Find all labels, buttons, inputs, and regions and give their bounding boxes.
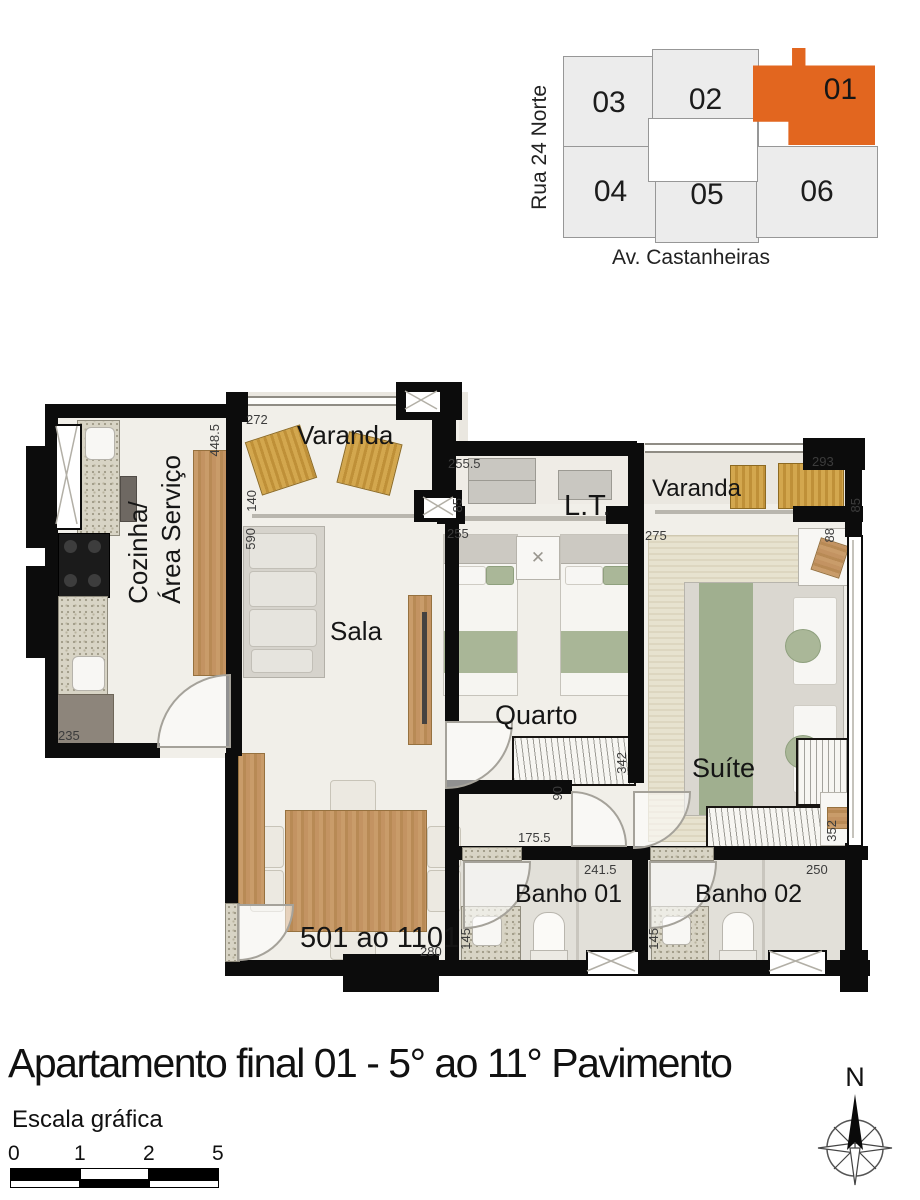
dim-suite-length: 352 — [824, 820, 839, 842]
key-plan-unit-03: 03 — [563, 56, 655, 149]
scale-segment — [149, 1180, 219, 1188]
dim-suite-width: 275 — [645, 528, 667, 543]
dim-varanda1-opening: 140 — [244, 490, 259, 512]
compass-point-s — [850, 1148, 860, 1185]
dim-hall-door: 90 — [550, 786, 565, 800]
dim-lt-width: 255.5 — [448, 456, 481, 471]
dim-suite-desk: 88 — [822, 528, 837, 542]
scale-tick-1: 1 — [74, 1142, 86, 1166]
dim-banho2-depth: 145 — [646, 928, 661, 950]
tv — [422, 612, 427, 724]
unit-number: 05 — [690, 178, 723, 212]
dining-chair — [330, 780, 376, 814]
banho2-door-sill — [650, 847, 714, 861]
room-label-quarto: Quarto — [495, 700, 578, 731]
dim-quarto-width: 255 — [447, 526, 469, 541]
banho1-door-sill — [462, 847, 522, 861]
dim-sala-width: 280 — [420, 944, 442, 959]
scale-tick-5: 5 — [212, 1142, 224, 1166]
wall — [845, 443, 862, 537]
unit-number: 03 — [592, 86, 625, 120]
banho2-shower-divider — [762, 860, 765, 962]
cooktop-burner — [64, 540, 77, 553]
sideboard — [238, 753, 265, 905]
wall — [628, 443, 644, 783]
dim-quarto-length: 342 — [614, 752, 629, 774]
scale-tick-2: 2 — [143, 1142, 155, 1166]
banho1-vent — [586, 950, 640, 976]
scale-bar: Escala gráfica 0 1 2 5 — [0, 1100, 260, 1200]
dining-table — [285, 810, 427, 932]
room-label-cozinha: Cozinha/ Área Serviço — [122, 455, 188, 604]
room-label-varanda-2: Varanda — [652, 475, 741, 503]
street-label-left: Rua 24 Norte — [528, 85, 552, 210]
room-label-sala: Sala — [330, 616, 382, 647]
dim-varanda1-width: 272 — [246, 412, 268, 427]
scale-segment — [10, 1168, 80, 1180]
dim-banho1-depth: 145 — [458, 928, 473, 950]
compass-rose: N — [800, 1058, 910, 1198]
kitchen-sink-2 — [72, 656, 105, 691]
unit-number: 01 — [824, 73, 857, 107]
kitchen-sink — [85, 427, 115, 460]
room-label-banho-02: Banho 02 — [695, 880, 802, 909]
dim-varanda2-depth: 85 — [848, 498, 863, 512]
key-plan-unit-01-highlighted: 01 — [753, 48, 875, 145]
cooktop-burner — [88, 574, 101, 587]
varanda2-railing — [645, 443, 807, 453]
dim-banho2-width: 250 — [806, 862, 828, 877]
dim-kitchen-wall: 448.5 — [207, 424, 222, 457]
street-label-bottom: Av. Castanheiras — [612, 246, 770, 270]
dim-cozinha-width: 235 — [58, 728, 80, 743]
wall — [226, 404, 242, 756]
compass-needle-north — [847, 1094, 863, 1150]
kitchen-shaft-window — [55, 424, 82, 530]
scale-segment — [10, 1180, 80, 1188]
banho1-sink — [472, 916, 502, 946]
wall — [225, 753, 238, 903]
key-plan: Rua 24 Norte 03 02 04 05 06 01 Av. Casta… — [520, 30, 890, 280]
wall — [26, 446, 47, 548]
scale-segment — [80, 1168, 149, 1180]
key-plan-core — [648, 118, 758, 182]
suite-window — [847, 535, 863, 847]
suite-varanda-glass-door — [655, 510, 793, 514]
dim-sala-length: 590 — [243, 528, 258, 550]
unit-number: 04 — [594, 175, 627, 209]
unit-number: 06 — [800, 175, 833, 209]
dim-banho1-width: 241.5 — [584, 862, 617, 877]
wall — [26, 566, 45, 658]
floor-plan-page: Rua 24 Norte 03 02 04 05 06 01 Av. Casta… — [0, 0, 920, 1200]
varanda1-railing — [246, 396, 398, 406]
cooktop-burner — [64, 574, 77, 587]
wall — [45, 404, 240, 418]
scale-tick-0: 0 — [8, 1142, 20, 1166]
tv-console — [408, 595, 432, 745]
wall — [845, 843, 862, 965]
banho1-shower-divider — [576, 860, 579, 962]
dim-varanda2-width: 293 — [812, 454, 834, 469]
wall — [343, 954, 439, 992]
dim-lt-depth: 85 — [450, 498, 465, 512]
twin-bed-2 — [560, 534, 635, 696]
quarto-nightstand: ✕ — [516, 536, 560, 580]
page-title: Apartamento final 01 - 5° ao 11° Pavimen… — [8, 1040, 731, 1087]
banho2-vent — [768, 950, 827, 976]
scale-segment — [80, 1180, 149, 1188]
room-label-suite: Suíte — [692, 753, 755, 784]
room-label-lt: L.T. — [564, 490, 611, 523]
banho2-sink — [662, 916, 691, 945]
shaft-box — [404, 390, 442, 414]
scale-bar-label: Escala gráfica — [12, 1106, 163, 1134]
scale-segment — [149, 1168, 219, 1180]
cooktop-burner — [88, 540, 101, 553]
compass-north-label: N — [845, 1062, 865, 1092]
key-plan-unit-04: 04 — [563, 146, 658, 238]
entry-door-sill — [225, 903, 240, 962]
key-plan-unit-06: 06 — [756, 146, 878, 238]
sala-varanda-glass-door — [252, 514, 430, 518]
dim-hall-length: 175.5 — [518, 830, 551, 845]
unit-number: 02 — [689, 83, 722, 117]
wall — [437, 441, 637, 456]
wall — [45, 743, 160, 758]
room-label-banho-01: Banho 01 — [515, 880, 622, 909]
room-label-varanda-1: Varanda — [297, 420, 393, 451]
